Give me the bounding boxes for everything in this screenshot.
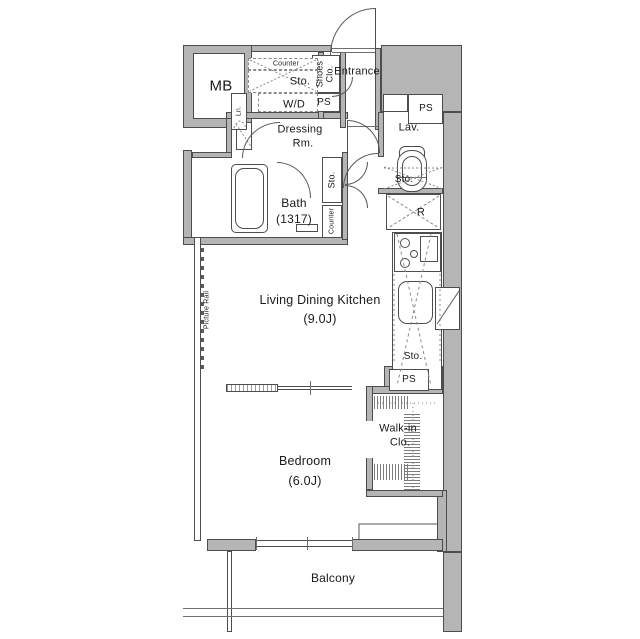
kitchen-sink bbox=[398, 281, 433, 324]
room-label-dressing-line2: Rm. bbox=[293, 139, 314, 150]
room-label-ldk-line1: Living Dining Kitchen bbox=[260, 294, 381, 307]
balcony-railing-line-2 bbox=[183, 616, 443, 617]
room-label-bedroom-line2: (6.0J) bbox=[288, 475, 321, 488]
stove-grill bbox=[420, 236, 438, 262]
hall-storage-door-arc-lower bbox=[345, 185, 368, 208]
room-label-dressing-line1: Dressing bbox=[277, 125, 322, 136]
label-ps-entry: PS bbox=[317, 98, 331, 108]
sliding-door-tick-left bbox=[256, 537, 257, 550]
meter-cut-box bbox=[383, 94, 408, 112]
fridge-space-box bbox=[386, 194, 441, 230]
room-label-mb: MB bbox=[210, 79, 233, 94]
sliding-door-tick-right bbox=[352, 537, 353, 550]
stove-burner-3 bbox=[400, 258, 410, 268]
room-label-bath-line1: Bath bbox=[281, 197, 307, 209]
shoes-closet-door-arc bbox=[332, 77, 353, 97]
entrance-door-arc bbox=[330, 8, 375, 55]
wall-bath-bottom bbox=[183, 237, 348, 245]
wic-door-opening bbox=[365, 421, 374, 458]
label-shoes-line2: Clo. bbox=[326, 66, 335, 83]
entrance-door-leaf bbox=[375, 8, 376, 55]
label-fridge: R bbox=[417, 208, 425, 219]
wall-wic-bottom bbox=[366, 490, 443, 497]
room-label-balcony: Balcony bbox=[311, 572, 355, 584]
hanger-rail-top bbox=[374, 396, 408, 409]
label-counter-top: Counter bbox=[273, 61, 299, 68]
room-label-lav: Lav. bbox=[399, 123, 420, 134]
room-label-entrance: Entrance bbox=[334, 67, 380, 78]
hanger-rail-bottom bbox=[374, 464, 408, 480]
label-ps-kitchen: PS bbox=[402, 375, 416, 385]
stove-burner-1 bbox=[400, 238, 410, 248]
label-counter-hall: Counter bbox=[329, 208, 336, 234]
room-label-walkin-line2: Clo. bbox=[390, 438, 410, 449]
room-label-ldk-line2: (9.0J) bbox=[303, 313, 336, 326]
bath-door-arc bbox=[277, 162, 311, 198]
wall-bath-top bbox=[192, 152, 232, 158]
label-storage-top: Sto. bbox=[290, 77, 310, 88]
wall-bath-left bbox=[183, 150, 192, 245]
stove-burner-2 bbox=[410, 250, 418, 258]
sliding-door-tick-center bbox=[307, 537, 308, 550]
label-storage-hall: Sto. bbox=[328, 172, 337, 189]
label-washer-dryer: W/D bbox=[283, 100, 305, 111]
label-linen: Ln. bbox=[236, 106, 243, 116]
balcony-railing-line-1 bbox=[183, 608, 443, 609]
balcony-sliding-door bbox=[256, 540, 352, 547]
room-label-bath-line2: (1317) bbox=[276, 213, 312, 225]
label-shoes-line1: Shoes bbox=[316, 61, 325, 88]
room-label-walkin-line1: Walk-in bbox=[379, 424, 417, 435]
room-partition-panel bbox=[226, 384, 278, 392]
wall-right-column bbox=[443, 112, 462, 552]
label-storage-lav: Sto. bbox=[395, 175, 414, 185]
corridor-door-leaf bbox=[347, 120, 348, 153]
label-ps-lav: PS bbox=[419, 104, 433, 114]
label-storage-kitchen: Sto. bbox=[404, 352, 423, 362]
wall-bedroom-bottom-right bbox=[352, 539, 443, 551]
label-picture-rail: Picture Rail bbox=[204, 291, 211, 329]
bathtub-inner bbox=[235, 168, 264, 229]
floor-plan: MB Counter Sto. W/D Ln. Shoes Clo. Entra… bbox=[0, 0, 640, 639]
wall-balcony-left bbox=[227, 551, 232, 632]
room-label-bedroom-line1: Bedroom bbox=[279, 455, 331, 468]
room-partition-track bbox=[278, 386, 352, 390]
wall-ldk-left bbox=[194, 237, 201, 541]
partition-tick bbox=[310, 381, 311, 395]
wall-bedroom-bottom-left bbox=[207, 539, 256, 551]
wall-balcony-right bbox=[443, 552, 462, 632]
kitchen-window bbox=[435, 287, 460, 330]
